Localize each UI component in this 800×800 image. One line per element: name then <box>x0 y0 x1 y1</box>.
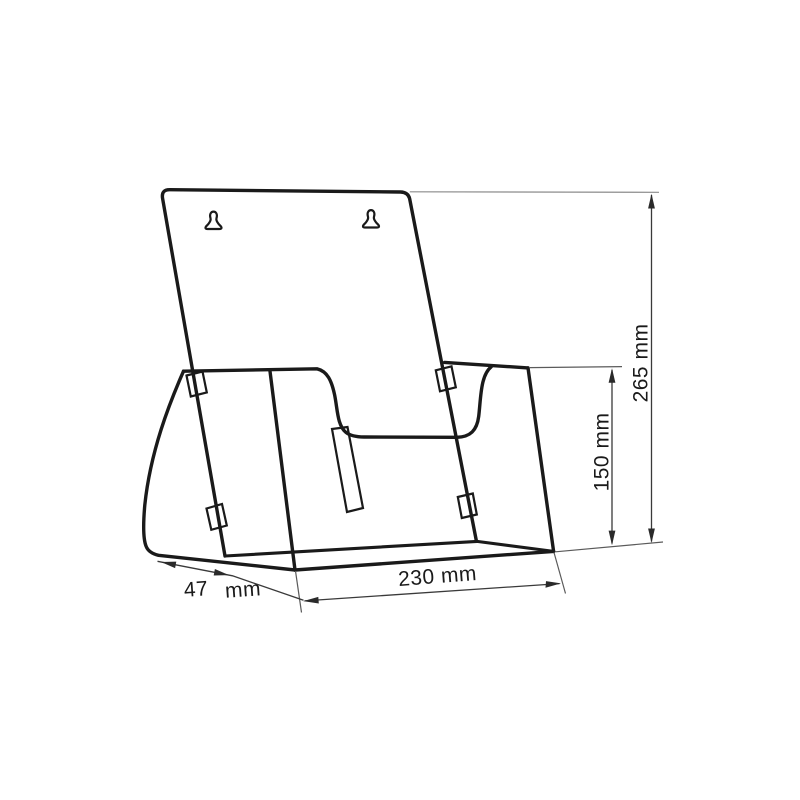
base-rear-edge <box>225 541 477 556</box>
keyhole-slot-icon <box>363 210 379 227</box>
dimension-label-150: 150 mm <box>591 413 614 492</box>
extension-line-right <box>554 553 566 594</box>
extension-line-top <box>410 192 659 193</box>
back-panel <box>162 190 476 556</box>
drawing-canvas: 265 mm 150 mm 230 mm 47 mm <box>0 0 800 800</box>
brochure-holder-technical-drawing: 265 mm 150 mm 230 mm 47 mm <box>0 0 800 800</box>
dimension-overall-height: 265 mm <box>410 192 663 552</box>
arrowhead-right <box>546 581 562 588</box>
base-right-edge <box>477 541 554 551</box>
dimension-label-230: 230 mm <box>397 562 477 591</box>
arrowhead-down <box>609 531 616 546</box>
arrowhead-up <box>609 368 616 383</box>
front-pocket <box>144 362 554 570</box>
center-slot <box>332 427 363 512</box>
dimension-pocket-height: 150 mm <box>530 367 622 546</box>
arrowhead-left <box>161 562 176 569</box>
front-right-edge <box>528 368 554 552</box>
extension-line-bottom <box>556 542 664 552</box>
dimension-label-47-unit: mm <box>224 577 262 602</box>
arrowhead-up <box>648 194 655 209</box>
dimension-label-265: 265 mm <box>630 324 653 403</box>
front-left-edge <box>270 371 295 570</box>
arrowhead-right <box>214 569 229 576</box>
dimension-label-47-value: 47 <box>183 577 209 602</box>
back-panel-outline <box>162 190 476 556</box>
keyhole-slot-icon <box>206 212 222 229</box>
arrowhead-down <box>648 529 655 544</box>
right-side-top-edge <box>445 362 528 368</box>
extension-line-left <box>296 571 302 613</box>
extension-line-top <box>530 367 622 368</box>
